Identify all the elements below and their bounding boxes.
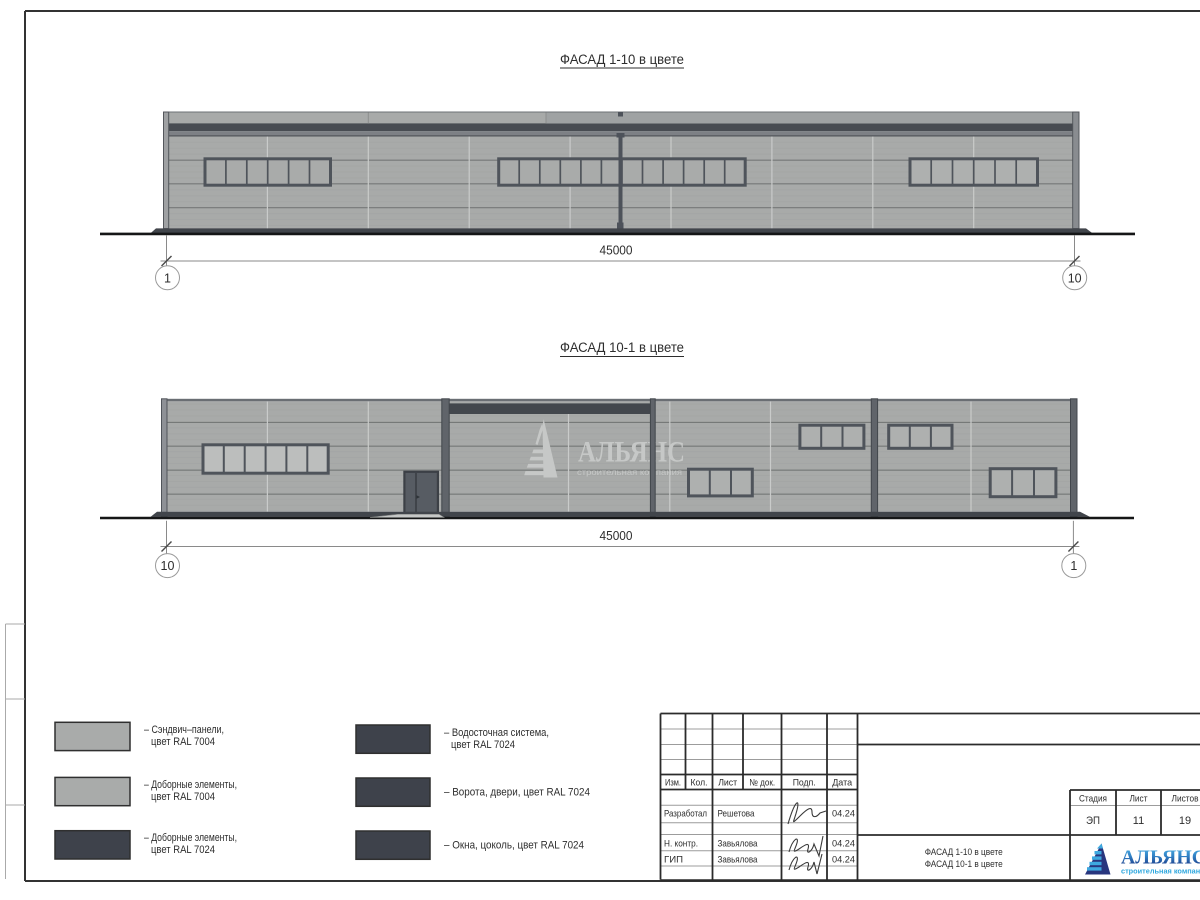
svg-text:Разработал: Разработал: [664, 809, 707, 820]
svg-text:Дата: Дата: [832, 778, 853, 789]
svg-text:10: 10: [1068, 271, 1082, 285]
svg-text:– Водосточная система,: – Водосточная система,: [444, 727, 549, 739]
svg-text:ФАСАД 1-10 в цвете: ФАСАД 1-10 в цвете: [925, 847, 1003, 858]
svg-text:– Сэндвич–панели,: – Сэндвич–панели,: [144, 724, 224, 736]
svg-text:Завьялова: Завьялова: [718, 855, 759, 866]
svg-text:10: 10: [161, 559, 175, 573]
svg-text:Лист: Лист: [718, 778, 738, 789]
svg-text:ФАСАД 10-1 в цвете: ФАСАД 10-1 в цвете: [925, 859, 1003, 870]
svg-text:цвет RAL 7024: цвет RAL 7024: [151, 844, 215, 856]
svg-text:– Ворота, двери, цвет RAL 7024: – Ворота, двери, цвет RAL 7024: [444, 787, 590, 799]
svg-text:Изм.: Изм.: [665, 778, 681, 789]
svg-text:ЭП: ЭП: [1086, 815, 1100, 827]
svg-text:цвет RAL 7004: цвет RAL 7004: [151, 791, 215, 803]
svg-text:Решетова: Решетова: [718, 809, 756, 820]
svg-text:Завьялова: Завьялова: [718, 839, 759, 850]
svg-text:11: 11: [1133, 815, 1144, 827]
svg-text:45000: 45000: [600, 244, 633, 258]
svg-text:строительная компания: строительная компания: [1121, 867, 1200, 876]
svg-text:АЛЬЯНС: АЛЬЯНС: [578, 436, 685, 469]
svg-text:Стадия: Стадия: [1079, 794, 1107, 805]
svg-text:04.24: 04.24: [832, 839, 855, 850]
svg-text:19: 19: [1179, 815, 1191, 827]
svg-text:1: 1: [1070, 559, 1077, 573]
svg-text:ГИП: ГИП: [664, 855, 683, 866]
svg-text:строительная компания: строительная компания: [577, 467, 682, 477]
svg-text:Лист: Лист: [1130, 794, 1149, 805]
svg-text:– Окна, цоколь, цвет RAL 7024: – Окна, цоколь, цвет RAL 7024: [444, 840, 584, 852]
svg-text:45000: 45000: [600, 529, 633, 543]
svg-text:Н. контр.: Н. контр.: [664, 839, 698, 850]
svg-text:– Доборные элементы,: – Доборные элементы,: [144, 832, 237, 844]
svg-text:цвет RAL 7004: цвет RAL 7004: [151, 736, 215, 748]
svg-text:№ док.: № док.: [749, 778, 775, 789]
svg-text:04.24: 04.24: [832, 809, 855, 820]
svg-text:Кол.: Кол.: [691, 778, 708, 789]
svg-text:Подп.: Подп.: [793, 778, 816, 789]
svg-text:04.24: 04.24: [832, 855, 855, 866]
svg-text:цвет RAL 7024: цвет RAL 7024: [451, 739, 515, 751]
svg-text:ФАСАД 10-1 в цвете: ФАСАД 10-1 в цвете: [560, 340, 684, 355]
svg-text:ФАСАД 1-10 в цвете: ФАСАД 1-10 в цвете: [560, 52, 684, 67]
svg-text:– Доборные элементы,: – Доборные элементы,: [144, 779, 237, 791]
svg-text:1: 1: [164, 271, 171, 285]
svg-text:АЛЬЯНС: АЛЬЯНС: [1121, 847, 1200, 869]
svg-text:Листов: Листов: [1172, 794, 1199, 805]
